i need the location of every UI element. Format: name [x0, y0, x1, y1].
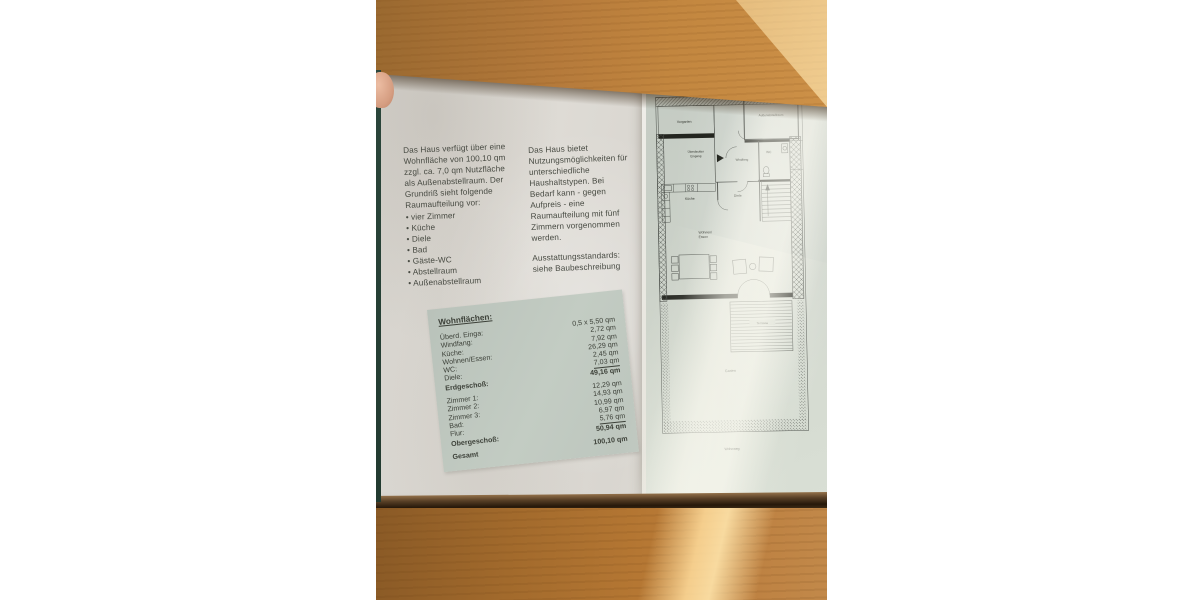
- label-eingang: Eingang: [690, 154, 701, 158]
- toilet: [763, 167, 769, 174]
- sink: [782, 144, 788, 153]
- floorplan-drawing: Grundriß Erdgeschoß Wohnweg Vorgarten Au…: [647, 64, 811, 467]
- area-row-value: 100,10 qm: [593, 435, 628, 447]
- plan-frame: [656, 94, 809, 433]
- label-kueche: Küche: [685, 197, 695, 201]
- sitting-area: [733, 257, 774, 275]
- label-vorgarten: Vorgarten: [677, 120, 692, 124]
- label-essen: Essen: [699, 235, 709, 239]
- photo-of-brochure-page: Das Haus verfügt über eine Wohnfläche vo…: [0, 0, 1200, 600]
- usage-description-block: Das Haus bietet Nutzungsmöglichkeiten fü…: [528, 142, 634, 276]
- room-list: vier Zimmer Küche Diele Bad Gäste-WC Abs…: [406, 208, 523, 289]
- area-row-value: 49,16 qm: [590, 366, 621, 377]
- kitchen-fixtures: [661, 183, 716, 222]
- label-wohnweg-bottom: Wohnweg: [724, 447, 739, 451]
- label-windfang: Windfang: [736, 158, 749, 162]
- label-diele: Diele: [734, 194, 742, 198]
- stairs-direction-arrow: [765, 185, 769, 191]
- label-aussenabstellraum: Außenabstellraum: [759, 113, 784, 118]
- label-wc: WC: [766, 150, 772, 154]
- entrance: [717, 147, 748, 211]
- dining-set: [671, 254, 717, 280]
- living-area-table: Wohnflächen: Überd. Einga:0,5 x 5,50 qm …: [427, 290, 639, 473]
- garden-hedges: [661, 300, 807, 433]
- sunlight-streak-on-wood: [634, 508, 776, 600]
- usage-paragraph: Das Haus bietet Nutzungsmöglichkeiten fü…: [528, 144, 628, 243]
- terrace-doors: [737, 279, 769, 296]
- brochure-left-page: Das Haus verfügt über eine Wohnfläche vo…: [381, 64, 645, 500]
- standards-note: Ausstattungsstandards: siehe Baubeschrei…: [532, 250, 634, 276]
- area-row-value: 50,94 qm: [596, 421, 627, 432]
- house-description-paragraph: Das Haus verfügt über eine Wohnfläche vo…: [403, 142, 506, 210]
- brochure-plan-page: Grundriß Erdgeschoß Wohnweg Vorgarten Au…: [646, 64, 827, 500]
- storage-door-arc: [738, 131, 747, 140]
- diele-door-arc: [737, 182, 747, 192]
- wood-table-bottom-band: [376, 508, 827, 600]
- front-door-arc: [726, 147, 737, 158]
- label-terrasse: Terrasse: [757, 321, 769, 325]
- entrance-arrow: [717, 154, 724, 162]
- area-row-label: Gesamt: [452, 450, 479, 461]
- dark-background-edge: [376, 70, 381, 502]
- terrace: [730, 301, 793, 352]
- label-garten: Garten: [725, 369, 736, 373]
- house-description-block: Das Haus verfügt über eine Wohnfläche vo…: [403, 142, 522, 290]
- armchair: [733, 259, 747, 274]
- wc-room: [763, 144, 789, 177]
- photograph: Das Haus verfügt über eine Wohnfläche vo…: [376, 0, 827, 600]
- staircase: [761, 181, 791, 222]
- side-table: [749, 263, 756, 270]
- armchair: [759, 257, 773, 271]
- kitchen-door-arc: [718, 200, 728, 210]
